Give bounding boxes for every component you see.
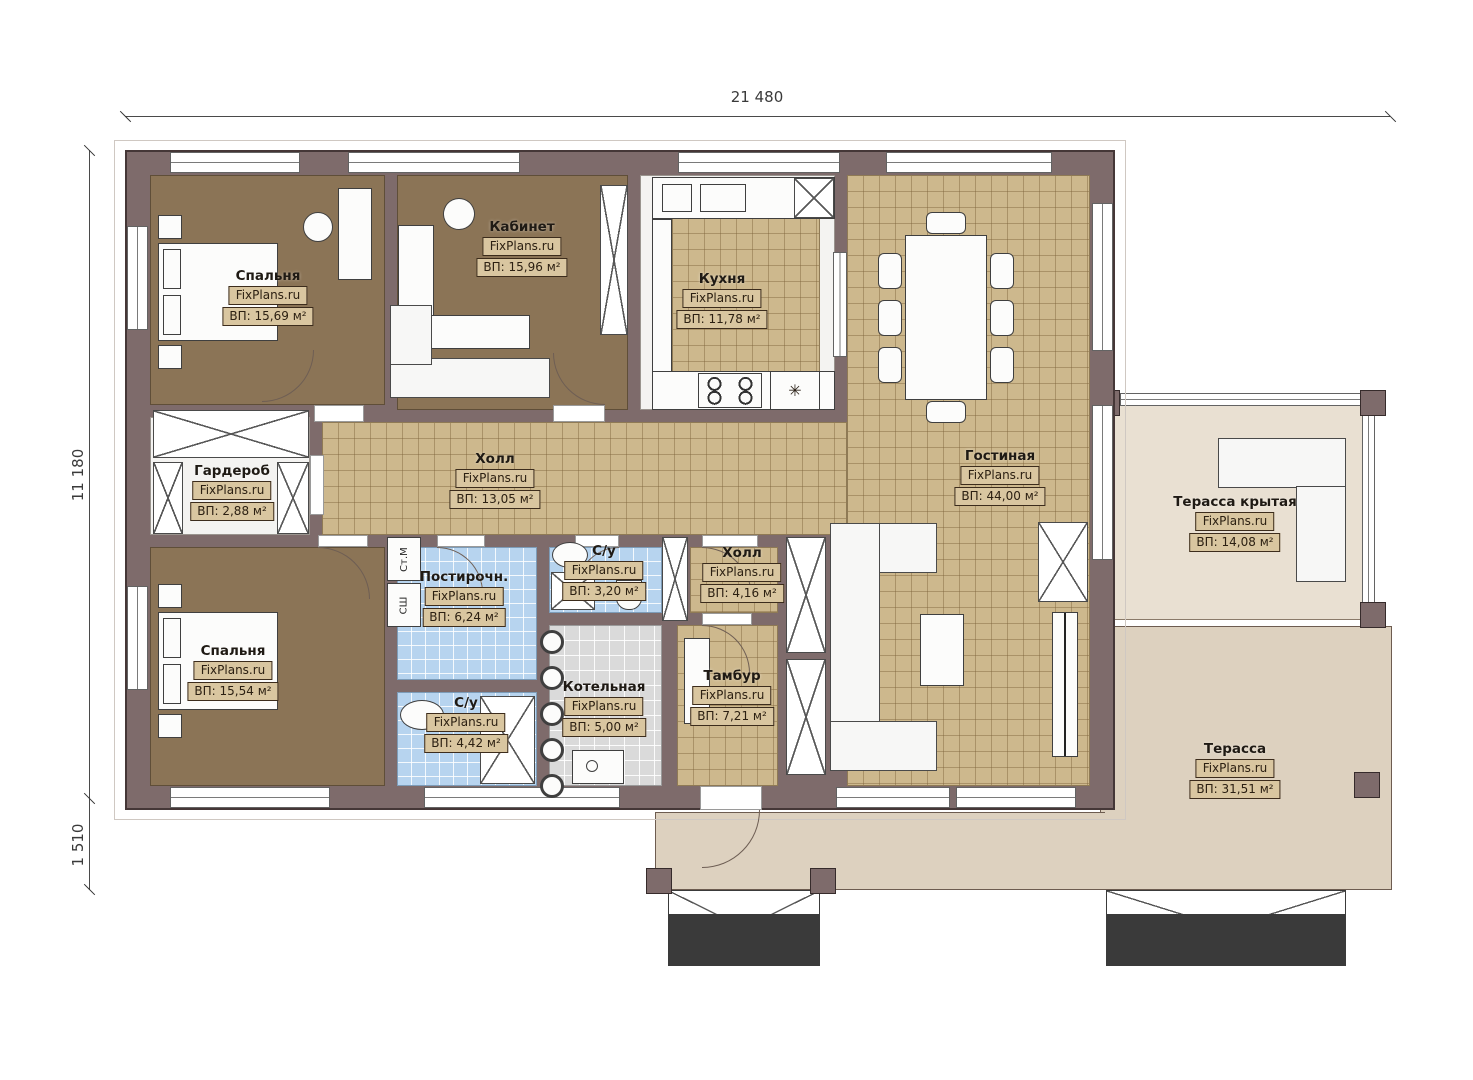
floor-plan: 21 480 11 180 1 510 (0, 0, 1473, 1080)
window (678, 152, 840, 173)
door-opening (437, 535, 485, 547)
room-brand-badge: FixPlans.ru (193, 481, 272, 500)
room-name: Холл (722, 545, 761, 561)
door-opening (318, 535, 368, 547)
snowflake-icon: ✳ (788, 381, 801, 400)
terrace-railing-right (1362, 404, 1375, 606)
window (127, 586, 148, 690)
dining-chair (878, 300, 902, 336)
wardrobe-shelf (153, 410, 309, 458)
room-brand-badge: FixPlans.ru (693, 686, 772, 705)
window (836, 787, 950, 808)
window (170, 787, 330, 808)
room-name: Тамбур (703, 668, 760, 684)
room-brand-badge: FixPlans.ru (703, 563, 782, 582)
room-area: ВП: 31,51 м² (1189, 780, 1280, 799)
room-floor-hall (322, 422, 847, 535)
room-area: ВП: 5,00 м² (562, 718, 646, 737)
window (956, 787, 1076, 808)
room-label-office: Кабинет FixPlans.ru ВП: 15,96 м² (476, 219, 567, 277)
stove (698, 373, 762, 408)
dining-chair (878, 347, 902, 383)
room-area: ВП: 15,96 м² (476, 258, 567, 277)
window (1092, 203, 1113, 351)
dimension-width-label: 21 480 (731, 88, 784, 106)
room-area: ВП: 4,16 м² (700, 584, 784, 603)
room-area: ВП: 13,05 м² (449, 490, 540, 509)
room-name: Кабинет (489, 219, 554, 235)
boiler-pipe (540, 630, 564, 654)
room-area: ВП: 14,08 м² (1189, 533, 1280, 552)
desk (338, 188, 372, 280)
washer-label: Ст.М (399, 547, 410, 572)
wardrobe-cabinet (600, 185, 628, 335)
room-brand-badge: FixPlans.ru (456, 469, 535, 488)
kitchen-sink (700, 184, 746, 212)
nightstand (158, 714, 182, 738)
room-label-hall-2: Холл FixPlans.ru ВП: 4,16 м² (700, 545, 784, 603)
room-brand-badge: FixPlans.ru (1196, 512, 1275, 531)
room-label-hall: Холл FixPlans.ru ВП: 13,05 м² (449, 451, 540, 509)
closet (786, 659, 826, 775)
room-name: Гостиная (965, 448, 1035, 464)
room-name: Котельная (563, 679, 646, 695)
room-area: ВП: 15,69 м² (222, 307, 313, 326)
wardrobe-shelf (153, 462, 183, 534)
room-name: Гардероб (194, 463, 270, 479)
terrace-railing-top (1120, 393, 1362, 406)
room-label-kitchen: Кухня FixPlans.ru ВП: 11,78 м² (676, 271, 767, 329)
porch-post (646, 868, 672, 894)
boiler-pipe (540, 702, 564, 726)
room-brand-badge: FixPlans.ru (1196, 759, 1275, 778)
room-area: ВП: 15,54 м² (187, 682, 278, 701)
door-opening (553, 405, 605, 422)
room-area: ВП: 11,78 м² (676, 310, 767, 329)
room-brand-badge: FixPlans.ru (425, 587, 504, 606)
dishwasher: ✳ (770, 371, 820, 410)
room-label-bath-1: С/у FixPlans.ru ВП: 3,20 м² (562, 543, 646, 601)
room-area: ВП: 2,88 м² (190, 502, 274, 521)
room-name: Постирочн. (420, 569, 509, 585)
window (886, 152, 1052, 173)
room-name: Спальня (201, 643, 266, 659)
dimension-line-top (125, 116, 1390, 117)
room-label-living: Гостиная FixPlans.ru ВП: 44,00 м² (954, 448, 1045, 506)
dining-chair (990, 253, 1014, 289)
room-brand-badge: FixPlans.ru (565, 561, 644, 580)
coffee-table (920, 614, 964, 686)
room-brand-badge: FixPlans.ru (483, 237, 562, 256)
porch-post (810, 868, 836, 894)
room-label-wardrobe: Гардероб FixPlans.ru ВП: 2,88 м² (190, 463, 274, 521)
boiler-gauge (586, 760, 598, 772)
terrace-post (1360, 390, 1386, 416)
room-brand-badge: FixPlans.ru (961, 466, 1040, 485)
room-label-boiler: Котельная FixPlans.ru ВП: 5,00 м² (562, 679, 646, 737)
room-area: ВП: 4,42 м² (424, 734, 508, 753)
dimension-line-left (89, 150, 90, 890)
pillow (163, 664, 181, 704)
room-area: ВП: 6,24 м² (422, 608, 506, 627)
pillow (163, 618, 181, 658)
fridge (794, 178, 834, 218)
room-brand-badge: FixPlans.ru (565, 697, 644, 716)
room-label-terrace-covered: Терасса крытая FixPlans.ru ВП: 14,08 м² (1173, 494, 1297, 552)
room-area: ВП: 3,20 м² (562, 582, 646, 601)
door-opening (702, 613, 752, 625)
room-area: ВП: 44,00 м² (954, 487, 1045, 506)
outdoor-sofa (1296, 486, 1346, 582)
pillow (163, 295, 181, 335)
boiler-pipe (540, 666, 564, 690)
window (170, 152, 300, 173)
room-name: Терасса крытая (1173, 494, 1297, 510)
drying-cabinet: СШ (387, 583, 421, 627)
room-name: Кухня (699, 271, 746, 287)
door-opening (314, 405, 364, 422)
wardrobe-shelf (277, 462, 309, 534)
sliding-door-terrace (1092, 405, 1113, 560)
room-brand-badge: FixPlans.ru (194, 661, 273, 680)
room-label-bedroom-2: Спальня FixPlans.ru ВП: 15,54 м² (187, 643, 278, 701)
room-name: Терасса (1204, 741, 1266, 757)
kitchen-counter (652, 219, 672, 373)
room-brand-badge: FixPlans.ru (427, 713, 506, 732)
sliding-door-kitchen (833, 252, 847, 357)
room-area: ВП: 7,21 м² (690, 707, 774, 726)
outdoor-sofa (1218, 438, 1346, 488)
boiler-pipe (540, 774, 564, 798)
room-name: С/у (592, 543, 616, 559)
nightstand (158, 215, 182, 239)
closet (786, 537, 826, 653)
terrace-post (1360, 602, 1386, 628)
kitchen-appliance (662, 184, 692, 212)
room-brand-badge: FixPlans.ru (229, 286, 308, 305)
dining-chair (926, 212, 966, 234)
room-label-laundry: Постирочн. FixPlans.ru ВП: 6,24 м² (420, 569, 509, 627)
door-opening (310, 455, 324, 515)
room-label-bedroom-1: Спальня FixPlans.ru ВП: 15,69 м² (222, 268, 313, 326)
dining-chair (990, 300, 1014, 336)
dining-chair (878, 253, 902, 289)
window (348, 152, 520, 173)
boiler-pipe (540, 738, 564, 762)
boiler-unit (572, 750, 624, 784)
sofa (830, 721, 937, 771)
fireplace (1038, 522, 1088, 602)
room-label-vestibule: Тамбур FixPlans.ru ВП: 7,21 м² (690, 668, 774, 726)
pillow (163, 249, 181, 289)
room-label-bath-2: С/у FixPlans.ru ВП: 4,42 м² (424, 695, 508, 753)
nightstand (158, 584, 182, 608)
dining-table (905, 235, 987, 400)
room-name: Холл (475, 451, 514, 467)
dryer-label: СШ (399, 596, 410, 614)
window (127, 226, 148, 330)
nightstand (158, 345, 182, 369)
closet (662, 537, 688, 621)
terrace-steps (1106, 890, 1346, 966)
washing-machine: Ст.М (387, 537, 421, 581)
dining-chair (990, 347, 1014, 383)
sofa (390, 305, 432, 365)
dimension-porch-label: 1 510 (69, 817, 87, 873)
window (424, 787, 620, 808)
entrance-door-opening (700, 786, 762, 810)
room-name: Спальня (236, 268, 301, 284)
entrance-steps (668, 890, 820, 966)
room-label-terrace: Терасса FixPlans.ru ВП: 31,51 м² (1189, 741, 1280, 799)
dimension-height-label: 11 180 (69, 445, 87, 505)
dining-chair (926, 401, 966, 423)
chair (303, 212, 333, 242)
tv-console (1052, 612, 1078, 757)
porch-post (1354, 772, 1380, 798)
room-name: С/у (454, 695, 478, 711)
room-brand-badge: FixPlans.ru (683, 289, 762, 308)
